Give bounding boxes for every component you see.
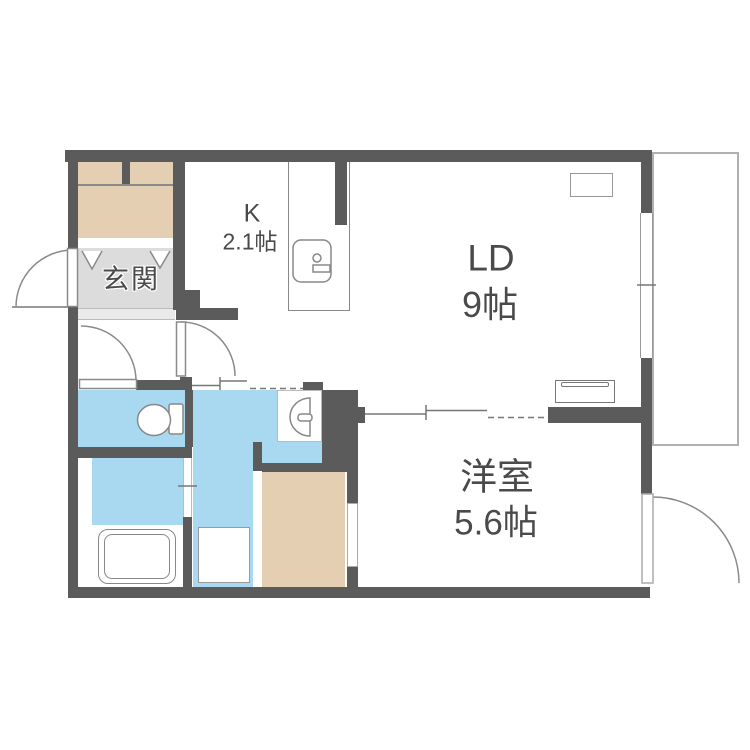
kitchen-door-leaf [177, 322, 186, 376]
kitchen-drain-icon [313, 265, 330, 272]
kitchen-faucet-icon [313, 254, 321, 262]
bedroom-name-label: 洋室 [460, 459, 534, 496]
toilet-bowl-icon [138, 405, 171, 436]
living-size-label: 9帖 [462, 287, 518, 323]
living-abbr-label: LD [467, 240, 514, 277]
entrance-door-leaf [68, 249, 78, 307]
kitchen-door-arc [181, 322, 235, 376]
entrance-door-arc [16, 250, 73, 307]
toilet-door-arc [81, 326, 136, 381]
bedroom-door-leaf [642, 494, 653, 583]
kitchen-size-label: 2.1帖 [223, 231, 278, 254]
bedroom-door-arc [653, 497, 739, 583]
plan-strokes [0, 0, 750, 750]
kitchen-abbr-label: K [244, 202, 261, 227]
floor-plan: 玄関 K 2.1帖 LD 9帖 洋室 5.6帖 [0, 0, 750, 750]
washbasin-tap-icon [298, 414, 312, 421]
entrance-label: 玄関 [102, 267, 160, 294]
kitchen-sink-icon [293, 240, 331, 282]
folding-door-mark-left [82, 251, 102, 269]
toilet-door-leaf [80, 380, 137, 389]
bedroom-size-label: 5.6帖 [454, 506, 538, 541]
